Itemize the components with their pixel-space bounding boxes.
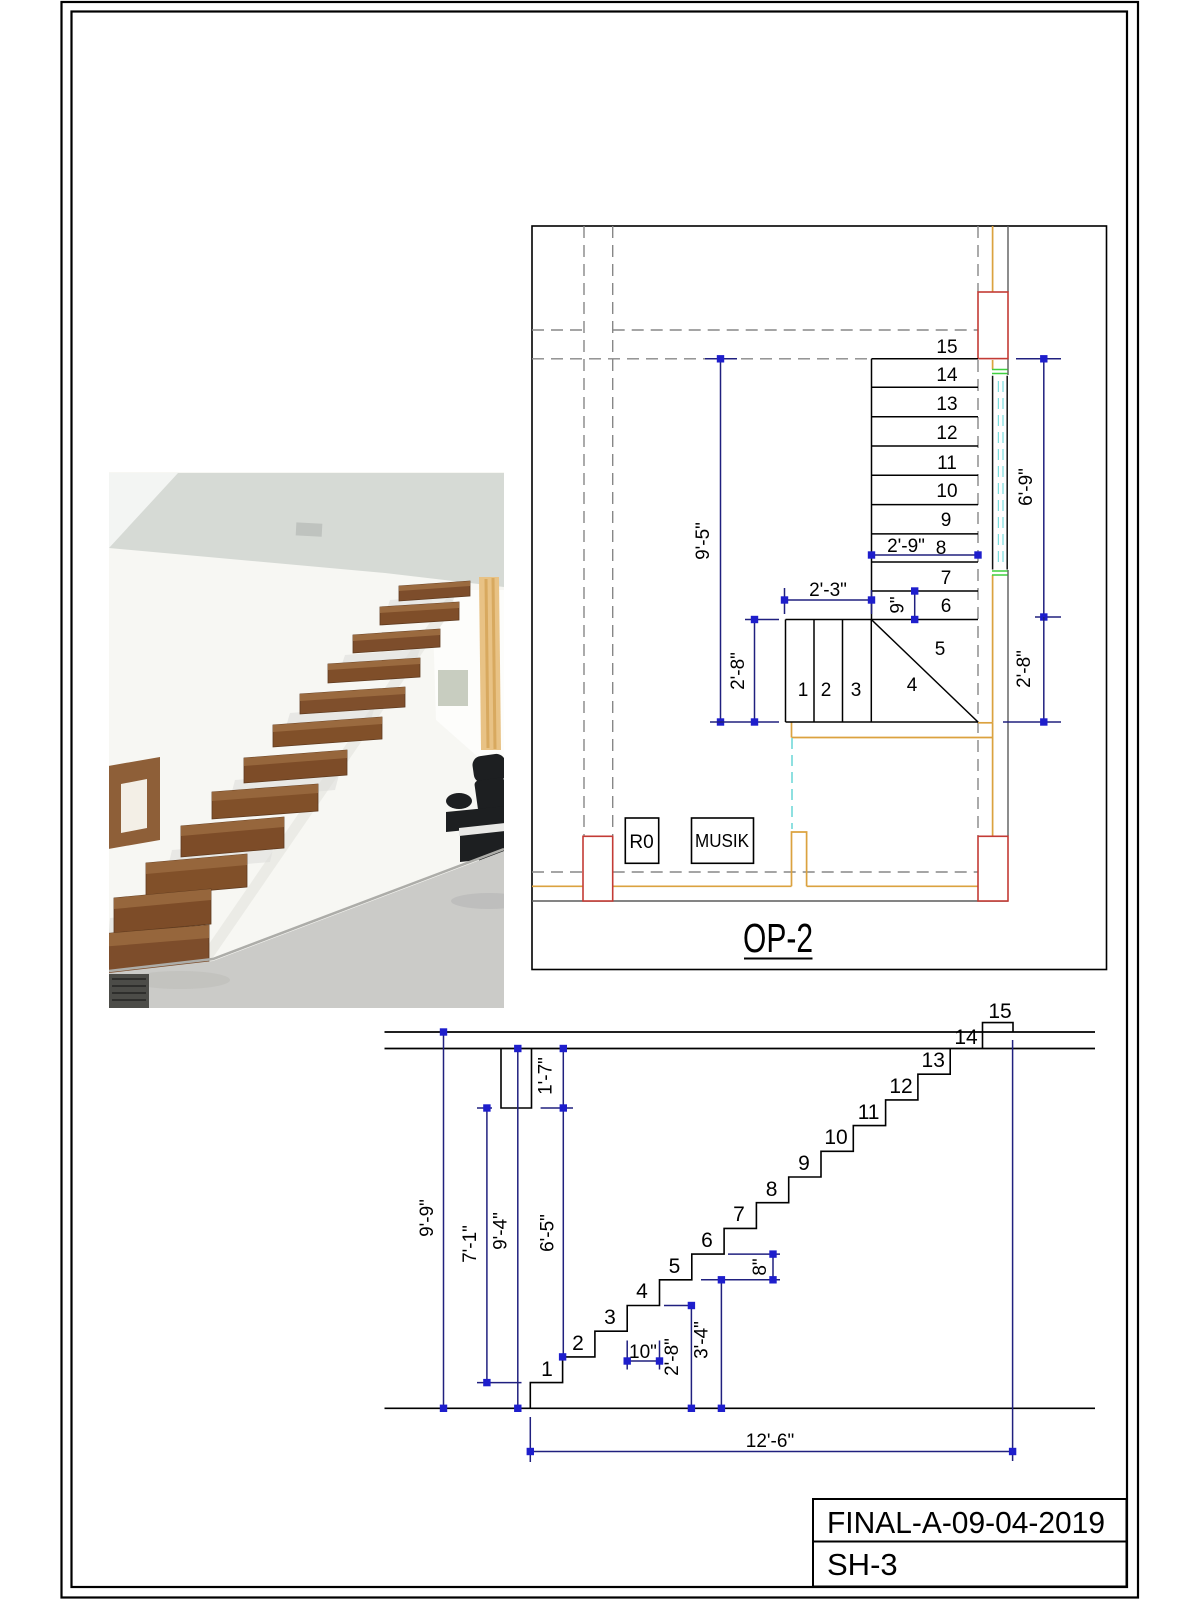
svg-text:9'-4": 9'-4"	[491, 1212, 512, 1250]
svg-text:12: 12	[889, 1075, 912, 1098]
svg-text:10": 10"	[629, 1342, 657, 1363]
svg-text:14: 14	[954, 1026, 978, 1049]
svg-text:7: 7	[733, 1203, 745, 1226]
svg-text:9'-9": 9'-9"	[417, 1199, 438, 1237]
svg-text:13: 13	[936, 394, 957, 415]
svg-text:1'-7": 1'-7"	[536, 1057, 557, 1095]
svg-text:11: 11	[937, 453, 957, 474]
svg-text:MUSIK: MUSIK	[695, 831, 749, 851]
svg-text:5: 5	[935, 639, 946, 660]
svg-text:OP-2: OP-2	[743, 915, 813, 961]
svg-text:2: 2	[821, 680, 832, 701]
svg-text:2'-9": 2'-9"	[887, 536, 925, 557]
svg-text:9": 9"	[888, 596, 909, 613]
svg-text:2'-3": 2'-3"	[809, 580, 847, 601]
svg-text:2'-8": 2'-8"	[728, 652, 749, 690]
svg-text:6'-5": 6'-5"	[538, 1214, 559, 1252]
svg-text:8: 8	[766, 1178, 778, 1201]
svg-text:12: 12	[936, 423, 957, 444]
svg-text:3: 3	[604, 1306, 616, 1329]
svg-text:13: 13	[922, 1049, 945, 1072]
svg-text:4: 4	[907, 675, 918, 696]
svg-text:8": 8"	[750, 1258, 771, 1275]
svg-text:R0: R0	[629, 832, 653, 853]
svg-text:10: 10	[936, 481, 957, 502]
svg-text:10: 10	[824, 1126, 847, 1149]
svg-text:8: 8	[936, 538, 947, 559]
svg-text:7'-1": 7'-1"	[460, 1225, 481, 1263]
svg-text:9'-5": 9'-5"	[693, 522, 714, 560]
svg-text:12'-6": 12'-6"	[746, 1431, 794, 1452]
svg-text:3: 3	[851, 680, 862, 701]
svg-text:6: 6	[701, 1229, 713, 1252]
svg-text:6: 6	[941, 596, 952, 617]
svg-text:FINAL-A-09-04-2019: FINAL-A-09-04-2019	[827, 1505, 1105, 1540]
svg-text:2: 2	[572, 1332, 584, 1355]
svg-text:5: 5	[669, 1255, 681, 1278]
svg-text:14: 14	[936, 365, 958, 386]
svg-text:4: 4	[636, 1280, 648, 1303]
svg-text:1: 1	[798, 680, 809, 701]
svg-text:6'-9": 6'-9"	[1016, 468, 1037, 506]
svg-text:SH-3: SH-3	[827, 1547, 898, 1582]
svg-text:3'-4": 3'-4"	[692, 1321, 713, 1359]
svg-text:9: 9	[941, 510, 952, 531]
svg-text:7: 7	[941, 568, 952, 589]
svg-text:2'-8": 2'-8"	[662, 1338, 683, 1376]
svg-text:2'-8": 2'-8"	[1014, 650, 1035, 688]
svg-text:15: 15	[988, 1000, 1011, 1023]
svg-text:1: 1	[541, 1358, 553, 1381]
svg-text:15: 15	[936, 337, 957, 358]
svg-text:11: 11	[858, 1101, 880, 1124]
svg-text:9: 9	[798, 1152, 810, 1175]
